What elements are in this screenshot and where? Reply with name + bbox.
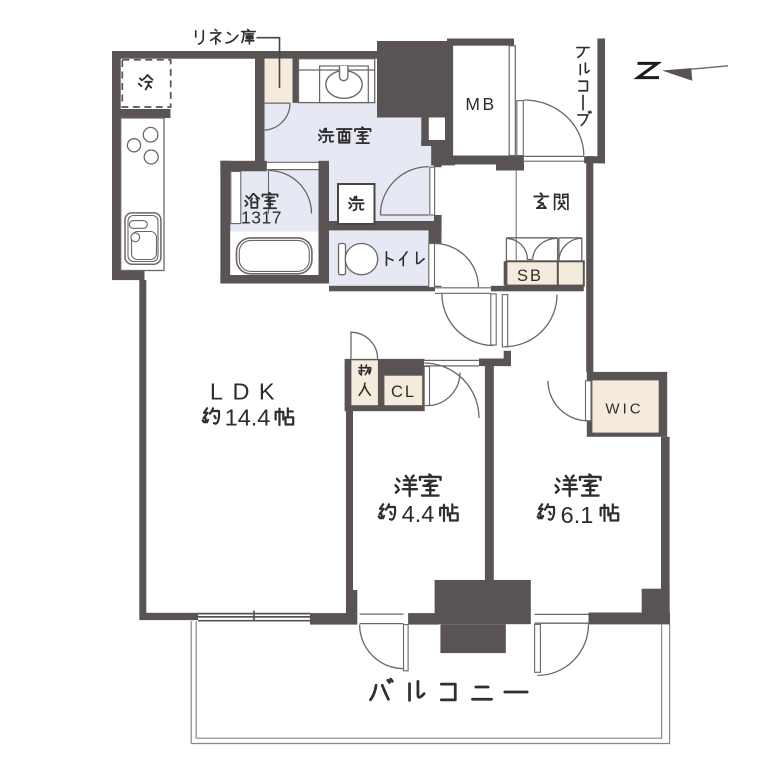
- svg-text:6.1: 6.1: [561, 502, 594, 528]
- svg-text:4.4: 4.4: [402, 501, 435, 527]
- svg-text:MB: MB: [465, 94, 496, 114]
- svg-text:14.4: 14.4: [225, 405, 271, 431]
- svg-text:CL: CL: [391, 383, 416, 401]
- svg-text:SB: SB: [517, 267, 543, 285]
- svg-text:LDK: LDK: [210, 379, 284, 405]
- svg-text:WIC: WIC: [605, 401, 643, 418]
- svg-text:1317: 1317: [241, 208, 282, 228]
